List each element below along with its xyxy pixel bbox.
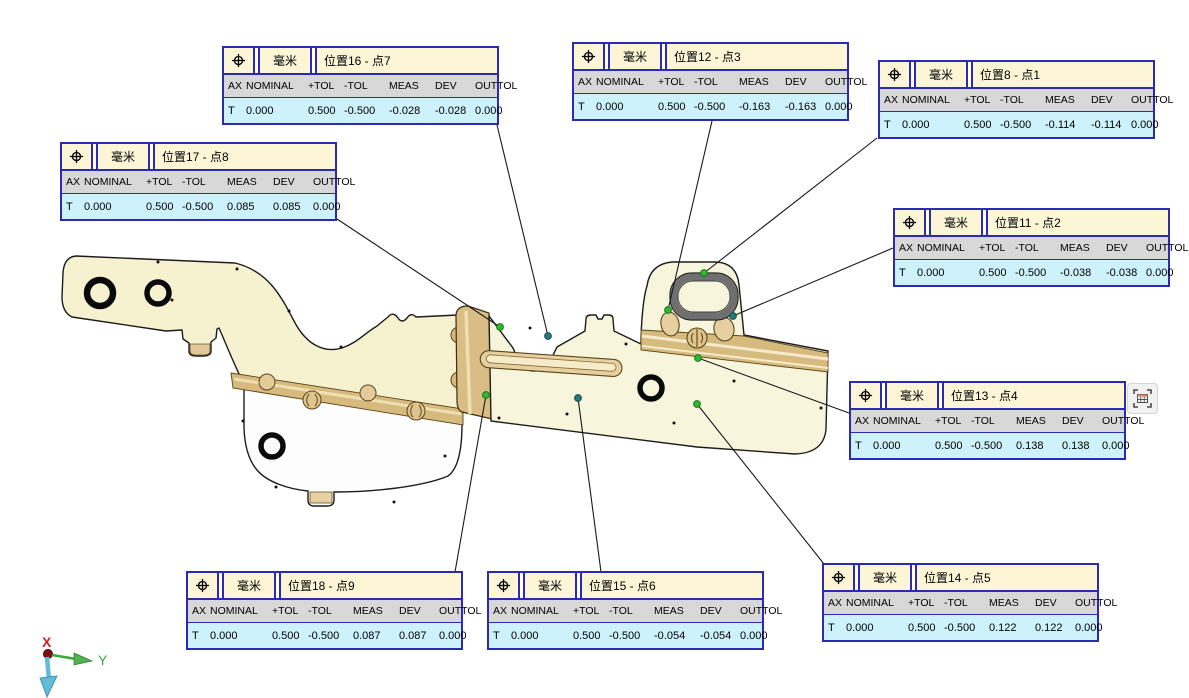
col-nominal: NOMINAL bbox=[511, 605, 573, 617]
col-ptol: +TOL bbox=[979, 242, 1015, 254]
unit-label: 毫米 bbox=[258, 48, 312, 73]
val-outtol: 0.000 bbox=[439, 630, 467, 642]
val-ptol: 0.500 bbox=[573, 630, 609, 642]
val-dev: -0.038 bbox=[1106, 267, 1146, 279]
col-ntol: -TOL bbox=[944, 597, 989, 609]
col-ntol: -TOL bbox=[182, 176, 227, 188]
position-crosshair-icon bbox=[574, 44, 605, 69]
val-outtol: 0.000 bbox=[1102, 440, 1130, 452]
col-ax: AX bbox=[884, 94, 902, 106]
val-meas: -0.038 bbox=[1060, 267, 1106, 279]
val-ntol: -0.500 bbox=[694, 101, 739, 113]
unit-label: 毫米 bbox=[929, 210, 983, 235]
col-dev: DEV bbox=[1091, 94, 1131, 106]
value-row: T0.0000.500-0.500-0.038-0.0380.000 bbox=[895, 260, 1168, 285]
flap-bottom-tab bbox=[310, 492, 332, 503]
label-title: 位置8 - 点1 bbox=[971, 62, 1153, 87]
val-outtol: 0.000 bbox=[825, 101, 853, 113]
col-ax: AX bbox=[228, 80, 246, 92]
cad-measurement-view: X Y 毫米 位置8 - 点1 AXNOMINAL+TOL-TOLMEASDEV… bbox=[0, 0, 1189, 698]
label-header: 毫米 位置12 - 点3 bbox=[574, 44, 847, 71]
val-outtol: 0.000 bbox=[475, 105, 503, 117]
leader-point-2 bbox=[733, 248, 893, 316]
col-ax: AX bbox=[828, 597, 846, 609]
col-nominal: NOMINAL bbox=[873, 415, 935, 427]
label-title: 位置12 - 点3 bbox=[665, 44, 847, 69]
measurement-point-3[interactable] bbox=[665, 307, 672, 314]
val-dev: 0.085 bbox=[273, 201, 313, 213]
measurement-point-9[interactable] bbox=[483, 392, 490, 399]
axis-y-arrowhead bbox=[74, 653, 92, 665]
label-title: 位置15 - 点6 bbox=[580, 573, 762, 598]
val-meas: -0.114 bbox=[1045, 119, 1091, 131]
column-header-row: AXNOMINAL+TOL-TOLMEASDEVOUTTOL bbox=[880, 89, 1153, 112]
col-outtol: OUTTOL bbox=[1075, 597, 1117, 609]
position-crosshair-icon bbox=[824, 565, 855, 590]
col-ptol: +TOL bbox=[908, 597, 944, 609]
measurement-label-pos15[interactable]: 毫米 位置15 - 点6 AXNOMINAL+TOL-TOLMEASDEVOUT… bbox=[487, 571, 764, 650]
value-row: T0.0000.500-0.500-0.054-0.0540.000 bbox=[489, 623, 762, 648]
measurement-label-pos14[interactable]: 毫米 位置14 - 点5 AXNOMINAL+TOL-TOLMEASDEVOUT… bbox=[822, 563, 1099, 642]
unit-label: 毫米 bbox=[96, 144, 150, 169]
val-meas: 0.138 bbox=[1016, 440, 1062, 452]
col-ax: AX bbox=[66, 176, 84, 188]
label-header: 毫米 位置16 - 点7 bbox=[224, 48, 497, 75]
axis-z-arrowhead bbox=[40, 676, 57, 697]
column-header-row: AXNOMINAL+TOL-TOLMEASDEVOUTTOL bbox=[574, 71, 847, 94]
measurement-point-5[interactable] bbox=[694, 401, 701, 408]
val-ptol: 0.500 bbox=[908, 622, 944, 634]
col-outtol: OUTTOL bbox=[740, 605, 782, 617]
col-ntol: -TOL bbox=[1000, 94, 1045, 106]
label-title: 位置16 - 点7 bbox=[315, 48, 497, 73]
axis-y-label: Y bbox=[98, 652, 108, 668]
col-nominal: NOMINAL bbox=[210, 605, 272, 617]
col-meas: MEAS bbox=[989, 597, 1035, 609]
measurement-label-pos16[interactable]: 毫米 位置16 - 点7 AXNOMINAL+TOL-TOLMEASDEVOUT… bbox=[222, 46, 499, 125]
col-ntol: -TOL bbox=[344, 80, 389, 92]
col-nominal: NOMINAL bbox=[246, 80, 308, 92]
col-nominal: NOMINAL bbox=[917, 242, 979, 254]
leader-point-1 bbox=[704, 138, 877, 273]
col-ntol: -TOL bbox=[308, 605, 353, 617]
table-frame-icon[interactable] bbox=[1127, 383, 1158, 414]
column-header-row: AXNOMINAL+TOL-TOLMEASDEVOUTTOL bbox=[895, 237, 1168, 260]
val-dev: 0.138 bbox=[1062, 440, 1102, 452]
part-small-tab bbox=[190, 344, 210, 355]
val-ax: T bbox=[493, 630, 511, 642]
unit-label: 毫米 bbox=[523, 573, 577, 598]
val-meas: 0.087 bbox=[353, 630, 399, 642]
col-meas: MEAS bbox=[1045, 94, 1091, 106]
col-ax: AX bbox=[578, 76, 596, 88]
column-header-row: AXNOMINAL+TOL-TOLMEASDEVOUTTOL bbox=[824, 592, 1097, 615]
position-crosshair-icon bbox=[188, 573, 219, 598]
col-ptol: +TOL bbox=[146, 176, 182, 188]
col-ptol: +TOL bbox=[573, 605, 609, 617]
val-ptol: 0.500 bbox=[964, 119, 1000, 131]
col-dev: DEV bbox=[273, 176, 313, 188]
col-ptol: +TOL bbox=[658, 76, 694, 88]
val-outtol: 0.000 bbox=[313, 201, 341, 213]
val-dev: -0.054 bbox=[700, 630, 740, 642]
value-row: T0.0000.500-0.5000.1220.1220.000 bbox=[824, 615, 1097, 640]
col-nominal: NOMINAL bbox=[846, 597, 908, 609]
measurement-point-8[interactable] bbox=[497, 324, 504, 331]
col-dev: DEV bbox=[785, 76, 825, 88]
measurement-label-pos11[interactable]: 毫米 位置11 - 点2 AXNOMINAL+TOL-TOLMEASDEVOUT… bbox=[893, 208, 1170, 287]
val-ntol: -0.500 bbox=[944, 622, 989, 634]
val-ax: T bbox=[828, 622, 846, 634]
col-outtol: OUTTOL bbox=[475, 80, 517, 92]
col-ntol: -TOL bbox=[1015, 242, 1060, 254]
col-ntol: -TOL bbox=[609, 605, 654, 617]
unit-label: 毫米 bbox=[858, 565, 912, 590]
part-drawing bbox=[62, 256, 828, 506]
col-nominal: NOMINAL bbox=[902, 94, 964, 106]
col-outtol: OUTTOL bbox=[1146, 242, 1188, 254]
val-ptol: 0.500 bbox=[935, 440, 971, 452]
val-meas: -0.054 bbox=[654, 630, 700, 642]
unit-label: 毫米 bbox=[608, 44, 662, 69]
col-outtol: OUTTOL bbox=[439, 605, 481, 617]
val-ax: T bbox=[855, 440, 873, 452]
col-dev: DEV bbox=[700, 605, 740, 617]
col-ax: AX bbox=[855, 415, 873, 427]
val-nominal: 0.000 bbox=[917, 267, 979, 279]
val-outtol: 0.000 bbox=[740, 630, 768, 642]
value-row: T0.0000.500-0.500-0.163-0.1630.000 bbox=[574, 94, 847, 119]
unit-label: 毫米 bbox=[222, 573, 276, 598]
val-ax: T bbox=[578, 101, 596, 113]
position-crosshair-icon bbox=[62, 144, 93, 169]
col-ptol: +TOL bbox=[308, 80, 344, 92]
val-nominal: 0.000 bbox=[873, 440, 935, 452]
val-nominal: 0.000 bbox=[246, 105, 308, 117]
val-meas: 0.122 bbox=[989, 622, 1035, 634]
measurement-point-1[interactable] bbox=[701, 270, 708, 277]
val-dev: 0.122 bbox=[1035, 622, 1075, 634]
measurement-label-pos18[interactable]: 毫米 位置18 - 点9 AXNOMINAL+TOL-TOLMEASDEVOUT… bbox=[186, 571, 463, 650]
col-outtol: OUTTOL bbox=[825, 76, 867, 88]
val-ptol: 0.500 bbox=[658, 101, 694, 113]
val-dev: 0.087 bbox=[399, 630, 439, 642]
label-header: 毫米 位置13 - 点4 bbox=[851, 383, 1124, 410]
column-header-row: AXNOMINAL+TOL-TOLMEASDEVOUTTOL bbox=[489, 600, 762, 623]
label-title: 位置18 - 点9 bbox=[279, 573, 461, 598]
unit-label: 毫米 bbox=[914, 62, 968, 87]
val-dev: -0.114 bbox=[1091, 119, 1131, 131]
position-crosshair-icon bbox=[895, 210, 926, 235]
val-meas: -0.028 bbox=[389, 105, 435, 117]
label-header: 毫米 位置17 - 点8 bbox=[62, 144, 335, 171]
val-ptol: 0.500 bbox=[146, 201, 182, 213]
val-nominal: 0.000 bbox=[846, 622, 908, 634]
label-title: 位置17 - 点8 bbox=[153, 144, 335, 169]
axis-z-arrow bbox=[47, 657, 49, 680]
col-outtol: OUTTOL bbox=[1102, 415, 1144, 427]
val-dev: -0.028 bbox=[435, 105, 475, 117]
col-outtol: OUTTOL bbox=[313, 176, 355, 188]
val-ax: T bbox=[228, 105, 246, 117]
position-crosshair-icon bbox=[880, 62, 911, 87]
val-ntol: -0.500 bbox=[1015, 267, 1060, 279]
val-nominal: 0.000 bbox=[210, 630, 272, 642]
value-row: T0.0000.500-0.500-0.114-0.1140.000 bbox=[880, 112, 1153, 137]
val-ax: T bbox=[66, 201, 84, 213]
label-header: 毫米 位置15 - 点6 bbox=[489, 573, 762, 600]
measurement-point-4[interactable] bbox=[695, 355, 702, 362]
unit-label: 毫米 bbox=[885, 383, 939, 408]
col-meas: MEAS bbox=[1060, 242, 1106, 254]
measurement-point-2[interactable] bbox=[730, 313, 737, 320]
val-meas: 0.085 bbox=[227, 201, 273, 213]
column-header-row: AXNOMINAL+TOL-TOLMEASDEVOUTTOL bbox=[851, 410, 1124, 433]
position-crosshair-icon bbox=[851, 383, 882, 408]
col-meas: MEAS bbox=[353, 605, 399, 617]
label-header: 毫米 位置18 - 点9 bbox=[188, 573, 461, 600]
value-row: T0.0000.500-0.5000.0850.0850.000 bbox=[62, 194, 335, 219]
val-nominal: 0.000 bbox=[596, 101, 658, 113]
label-title: 位置11 - 点2 bbox=[986, 210, 1168, 235]
col-ax: AX bbox=[493, 605, 511, 617]
value-row: T0.0000.500-0.5000.0870.0870.000 bbox=[188, 623, 461, 648]
val-outtol: 0.000 bbox=[1146, 267, 1174, 279]
label-title: 位置14 - 点5 bbox=[915, 565, 1097, 590]
leader-point-8 bbox=[334, 217, 500, 327]
axis-triad: X Y bbox=[40, 634, 108, 697]
label-header: 毫米 位置11 - 点2 bbox=[895, 210, 1168, 237]
col-dev: DEV bbox=[399, 605, 439, 617]
col-meas: MEAS bbox=[654, 605, 700, 617]
leader-point-7 bbox=[497, 125, 548, 336]
col-dev: DEV bbox=[1106, 242, 1146, 254]
val-ntol: -0.500 bbox=[609, 630, 654, 642]
axis-y-arrow bbox=[52, 655, 76, 659]
col-ptol: +TOL bbox=[964, 94, 1000, 106]
position-crosshair-icon bbox=[489, 573, 520, 598]
col-meas: MEAS bbox=[227, 176, 273, 188]
col-meas: MEAS bbox=[389, 80, 435, 92]
measurement-label-pos17[interactable]: 毫米 位置17 - 点8 AXNOMINAL+TOL-TOLMEASDEVOUT… bbox=[60, 142, 337, 221]
axis-x-label: X bbox=[42, 634, 52, 650]
col-ax: AX bbox=[192, 605, 210, 617]
val-ntol: -0.500 bbox=[971, 440, 1016, 452]
measurement-label-pos13[interactable]: 毫米 位置13 - 点4 AXNOMINAL+TOL-TOLMEASDEVOUT… bbox=[849, 381, 1126, 460]
val-ax: T bbox=[884, 119, 902, 131]
col-ptol: +TOL bbox=[935, 415, 971, 427]
val-nominal: 0.000 bbox=[902, 119, 964, 131]
col-nominal: NOMINAL bbox=[84, 176, 146, 188]
label-header: 毫米 位置8 - 点1 bbox=[880, 62, 1153, 89]
col-dev: DEV bbox=[1035, 597, 1075, 609]
val-ntol: -0.500 bbox=[182, 201, 227, 213]
label-title: 位置13 - 点4 bbox=[942, 383, 1124, 408]
val-ax: T bbox=[899, 267, 917, 279]
measurement-label-pos12[interactable]: 毫米 位置12 - 点3 AXNOMINAL+TOL-TOLMEASDEVOUT… bbox=[572, 42, 849, 121]
value-row: T0.0000.500-0.500-0.028-0.0280.000 bbox=[224, 98, 497, 123]
position-crosshair-icon bbox=[224, 48, 255, 73]
label-header: 毫米 位置14 - 点5 bbox=[824, 565, 1097, 592]
val-ptol: 0.500 bbox=[272, 630, 308, 642]
col-ntol: -TOL bbox=[971, 415, 1016, 427]
val-ntol: -0.500 bbox=[1000, 119, 1045, 131]
column-header-row: AXNOMINAL+TOL-TOLMEASDEVOUTTOL bbox=[224, 75, 497, 98]
val-ntol: -0.500 bbox=[308, 630, 353, 642]
val-meas: -0.163 bbox=[739, 101, 785, 113]
val-ptol: 0.500 bbox=[308, 105, 344, 117]
val-ntol: -0.500 bbox=[344, 105, 389, 117]
col-nominal: NOMINAL bbox=[596, 76, 658, 88]
measurement-label-pos8[interactable]: 毫米 位置8 - 点1 AXNOMINAL+TOL-TOLMEASDEVOUTT… bbox=[878, 60, 1155, 139]
column-header-row: AXNOMINAL+TOL-TOLMEASDEVOUTTOL bbox=[62, 171, 335, 194]
val-nominal: 0.000 bbox=[511, 630, 573, 642]
col-ax: AX bbox=[899, 242, 917, 254]
val-ax: T bbox=[192, 630, 210, 642]
val-ptol: 0.500 bbox=[979, 267, 1015, 279]
val-dev: -0.163 bbox=[785, 101, 825, 113]
col-ptol: +TOL bbox=[272, 605, 308, 617]
val-outtol: 0.000 bbox=[1131, 119, 1159, 131]
column-header-row: AXNOMINAL+TOL-TOLMEASDEVOUTTOL bbox=[188, 600, 461, 623]
col-dev: DEV bbox=[435, 80, 475, 92]
col-meas: MEAS bbox=[739, 76, 785, 88]
measurement-point-6[interactable] bbox=[575, 395, 582, 402]
col-dev: DEV bbox=[1062, 415, 1102, 427]
val-outtol: 0.000 bbox=[1075, 622, 1103, 634]
col-meas: MEAS bbox=[1016, 415, 1062, 427]
col-ntol: -TOL bbox=[694, 76, 739, 88]
measurement-point-7[interactable] bbox=[545, 333, 552, 340]
col-outtol: OUTTOL bbox=[1131, 94, 1173, 106]
val-nominal: 0.000 bbox=[84, 201, 146, 213]
value-row: T0.0000.500-0.5000.1380.1380.000 bbox=[851, 433, 1124, 458]
